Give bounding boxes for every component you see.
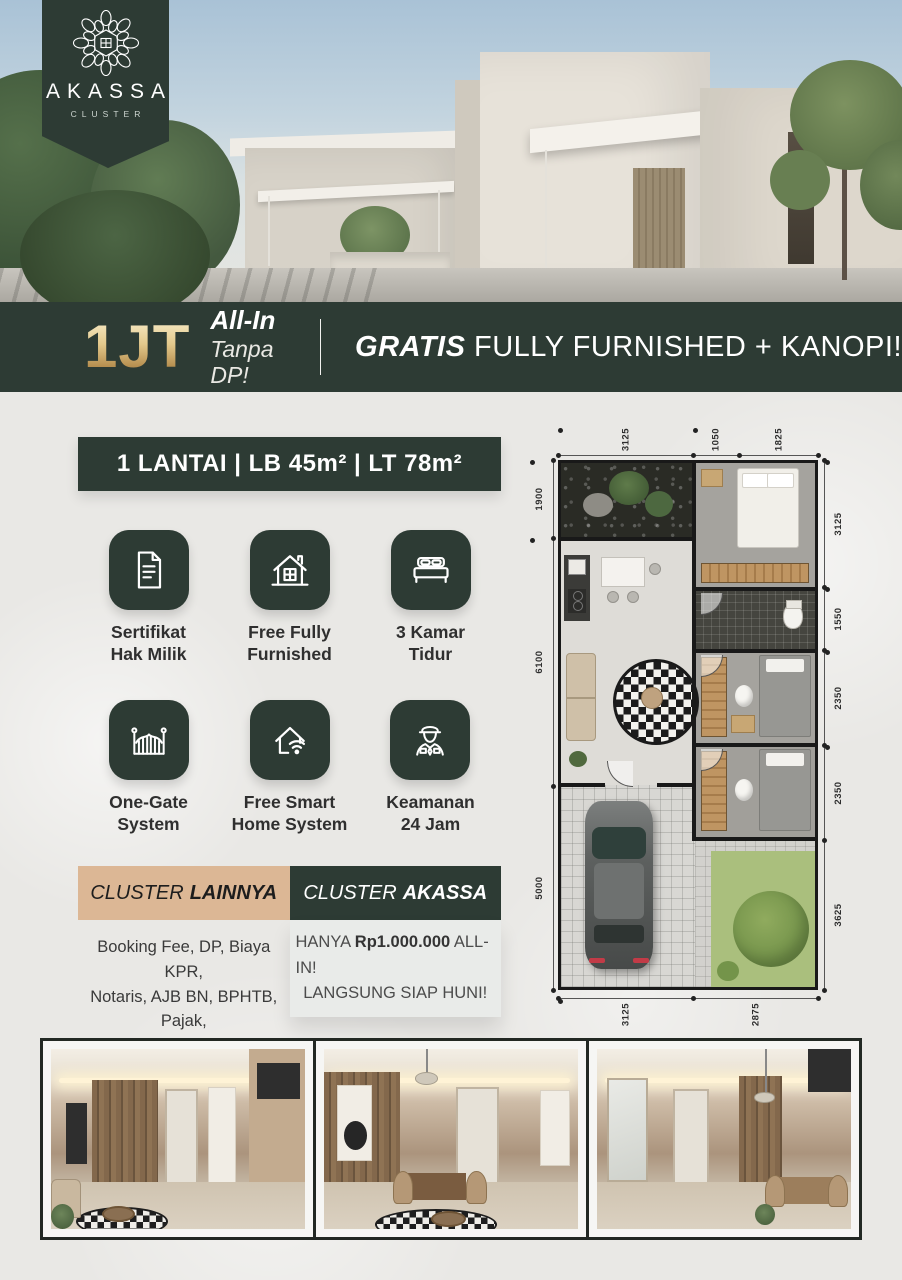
dimension-segment: 6100 [530, 538, 554, 786]
wardrobe [701, 563, 809, 583]
header-bold: LAINNYA [190, 882, 277, 905]
comparison-akassa: CLUSTER AKASSA HANYA Rp1.000.000 ALL-IN!… [290, 866, 502, 1059]
mandala-house-icon [73, 10, 139, 76]
promo-tanpa-dp: Tanpa DP! [210, 336, 277, 389]
stove [568, 589, 586, 613]
promo-banner: 1JT All-In Tanpa DP! GRATIS FULLY FURNIS… [0, 302, 902, 392]
price-line-amount: Rp1.000.000 [355, 933, 450, 951]
promo-gratis-word: GRATIS [355, 331, 465, 363]
interior-photo-strip [40, 1038, 862, 1240]
chair [607, 591, 619, 603]
pot [735, 685, 753, 707]
decor-door [165, 1089, 198, 1192]
wall [692, 837, 815, 841]
decor-wood-slats [92, 1080, 158, 1192]
car-tail-light [633, 958, 649, 963]
wall [692, 649, 815, 653]
dimension-label: 3125 [833, 512, 844, 535]
feature-label: Free Smart Home System [232, 792, 348, 836]
kitchen-sink [568, 559, 586, 575]
feature-label: Sertifikat Hak Milik [111, 622, 187, 666]
car-rear-window [594, 925, 644, 943]
decor-door [673, 1089, 709, 1193]
feature-label: One-Gate System [109, 792, 188, 836]
decor-fridge [208, 1087, 236, 1191]
master-bed [737, 468, 799, 548]
sofa [566, 653, 596, 741]
dimension-row-bottom: 3125 2875 [558, 998, 818, 1026]
comparison-akassa-header: CLUSTER AKASSA [290, 866, 502, 920]
dimension-label: 2350 [833, 781, 844, 804]
tree-foliage [770, 150, 830, 210]
promo-subtext: All-In Tanpa DP! [210, 306, 277, 389]
dimension-label: 2350 [833, 686, 844, 709]
feature-security: Keamanan 24 Jam [386, 700, 475, 870]
car-tail-light [589, 958, 605, 963]
price-line-pre: HANYA [296, 933, 355, 951]
dimension-label: 3125 [620, 428, 631, 451]
chair [627, 591, 639, 603]
dimension-segment: 3125 [824, 460, 848, 587]
interior-photo-3 [589, 1041, 859, 1237]
price-highlight: 1JT [84, 317, 190, 377]
dimension-label: 1900 [534, 487, 545, 510]
single-bed [759, 655, 811, 737]
flyer-poster: AKASSA CLUSTER 1JT All-In Tanpa DP! GRAT… [0, 0, 902, 1280]
decor-plant [51, 1204, 74, 1229]
decor-upper-cabinet [808, 1049, 851, 1092]
dimension-segment: 1900 [530, 460, 554, 538]
car [585, 801, 653, 969]
dimension-label: 1050 [711, 428, 722, 451]
interior-photo-2 [316, 1041, 586, 1237]
coffee-table [641, 687, 663, 709]
wall [692, 743, 815, 747]
smart-home-wifi-icon [250, 700, 330, 780]
decor-mirror [607, 1078, 648, 1182]
header-prefix: CLUSTER [90, 882, 183, 905]
dimension-segment: 2350 [824, 650, 848, 745]
photo-hallway-dining [597, 1049, 851, 1229]
feature-furnished: Free Fully Furnished [247, 530, 332, 700]
feature-label: Keamanan 24 Jam [386, 792, 475, 836]
feature-certificate: Sertifikat Hak Milik [109, 530, 189, 700]
dimension-segment: 2875 [693, 998, 818, 1026]
header-bold: AKASSA [403, 882, 487, 905]
wall [692, 587, 815, 591]
dimension-label: 1550 [833, 607, 844, 630]
wall [561, 537, 695, 541]
promo-gratis-line: GRATIS FULLY FURNISHED + KANOPI! [355, 331, 902, 364]
stone-shape [583, 493, 613, 517]
promo-gratis-rest: FULLY FURNISHED + KANOPI! [465, 331, 902, 363]
decor-window [540, 1090, 570, 1166]
single-bed [759, 749, 811, 831]
divider [320, 319, 321, 375]
decor-pendant-shade [754, 1092, 774, 1103]
side-table [731, 715, 755, 733]
chair [649, 563, 661, 575]
dimension-segment: 3125 [558, 428, 693, 456]
akassa-price-line: HANYA Rp1.000.000 ALL-IN! [296, 930, 496, 981]
wall [561, 783, 605, 787]
dimension-label: 3125 [620, 1003, 631, 1026]
dimension-segment: 1550 [824, 587, 848, 650]
feature-label: 3 Kamar Tidur [396, 622, 465, 666]
decor-coffee-table [102, 1206, 135, 1222]
document-certificate-icon [109, 530, 189, 610]
brand-subtitle: CLUSTER [66, 109, 146, 119]
decor-chair [393, 1171, 413, 1203]
brand-name: AKASSA [39, 80, 172, 104]
dimension-column-left: 1900 6100 5000 [530, 460, 554, 990]
comparison-akassa-body: HANYA Rp1.000.000 ALL-IN! LANGSUNG SIAP … [290, 920, 502, 1017]
floor-plan-drawing [558, 460, 818, 990]
dimension-row-top: 3125 1050 1825 [558, 428, 818, 456]
furnished-house-icon [250, 530, 330, 610]
gate-icon [109, 700, 189, 780]
dining-table [601, 557, 645, 587]
decor-chair [828, 1175, 848, 1207]
photo-living-kitchen [51, 1049, 305, 1229]
features-grid: Sertifikat Hak Milik Free Fully Furnishe… [78, 530, 501, 870]
toilet [783, 603, 803, 629]
dimension-label: 2875 [750, 1003, 761, 1026]
dimension-column-right: 3125 1550 2350 2350 3625 [824, 460, 848, 990]
header-prefix: CLUSTER [303, 882, 396, 905]
plant-shape [569, 751, 587, 767]
comparison-others: CLUSTER LAINNYA Booking Fee, DP, Biaya K… [78, 866, 290, 1059]
plant-shape [645, 491, 673, 517]
feature-bedrooms: 3 Kamar Tidur [391, 530, 471, 700]
dimension-segment: 3625 [824, 840, 848, 990]
dimension-label: 6100 [534, 650, 545, 673]
decor-art-blob [344, 1121, 367, 1150]
akassa-ready-line: LANGSUNG SIAP HUNI! [303, 981, 487, 1007]
decor-chair [466, 1171, 486, 1203]
comparison-others-header: CLUSTER LAINNYA [78, 866, 290, 920]
nightstand [701, 469, 723, 487]
plant-shape [609, 471, 649, 505]
decor-chair [765, 1175, 785, 1207]
decor-plant [755, 1204, 775, 1226]
yard-bush [717, 961, 739, 981]
comparison-section: CLUSTER LAINNYA Booking Fee, DP, Biaya K… [78, 866, 501, 1059]
promo-all-in: All-In [210, 306, 277, 336]
decor-dining-table [408, 1173, 466, 1200]
decor-upper-cabinet [257, 1063, 300, 1099]
decor-pendant-cord [765, 1049, 767, 1096]
canopy-post [545, 150, 547, 280]
dimension-label: 5000 [534, 876, 545, 899]
brand-banner: AKASSA CLUSTER [42, 0, 169, 168]
dimension-segment: 2350 [824, 745, 848, 840]
yard-tree [733, 891, 809, 967]
security-guard-icon [390, 700, 470, 780]
floor-plan: 3125 1050 1825 1900 6100 5000 3125 1550 … [528, 426, 900, 1040]
feature-smart-home: Free Smart Home System [232, 700, 348, 870]
dimension-segment: 1050 [693, 428, 739, 456]
feature-one-gate: One-Gate System [109, 700, 189, 870]
dimension-segment: 5000 [530, 786, 554, 990]
dimension-segment: 1825 [739, 428, 818, 456]
decor-tv [66, 1103, 86, 1164]
decor-pendant-shade [415, 1072, 438, 1085]
bed-icon [391, 530, 471, 610]
photo-dining-room [324, 1049, 578, 1229]
dimension-label: 3625 [833, 903, 844, 926]
interior-photo-1 [43, 1041, 313, 1237]
dimension-segment: 3125 [558, 998, 693, 1026]
wall [657, 783, 695, 787]
dimension-label: 1825 [773, 428, 784, 451]
canopy-post [268, 196, 270, 266]
feature-label: Free Fully Furnished [247, 622, 332, 666]
spec-header: 1 LANTAI | LB 45m² | LT 78m² [78, 437, 501, 491]
pot [735, 779, 753, 801]
